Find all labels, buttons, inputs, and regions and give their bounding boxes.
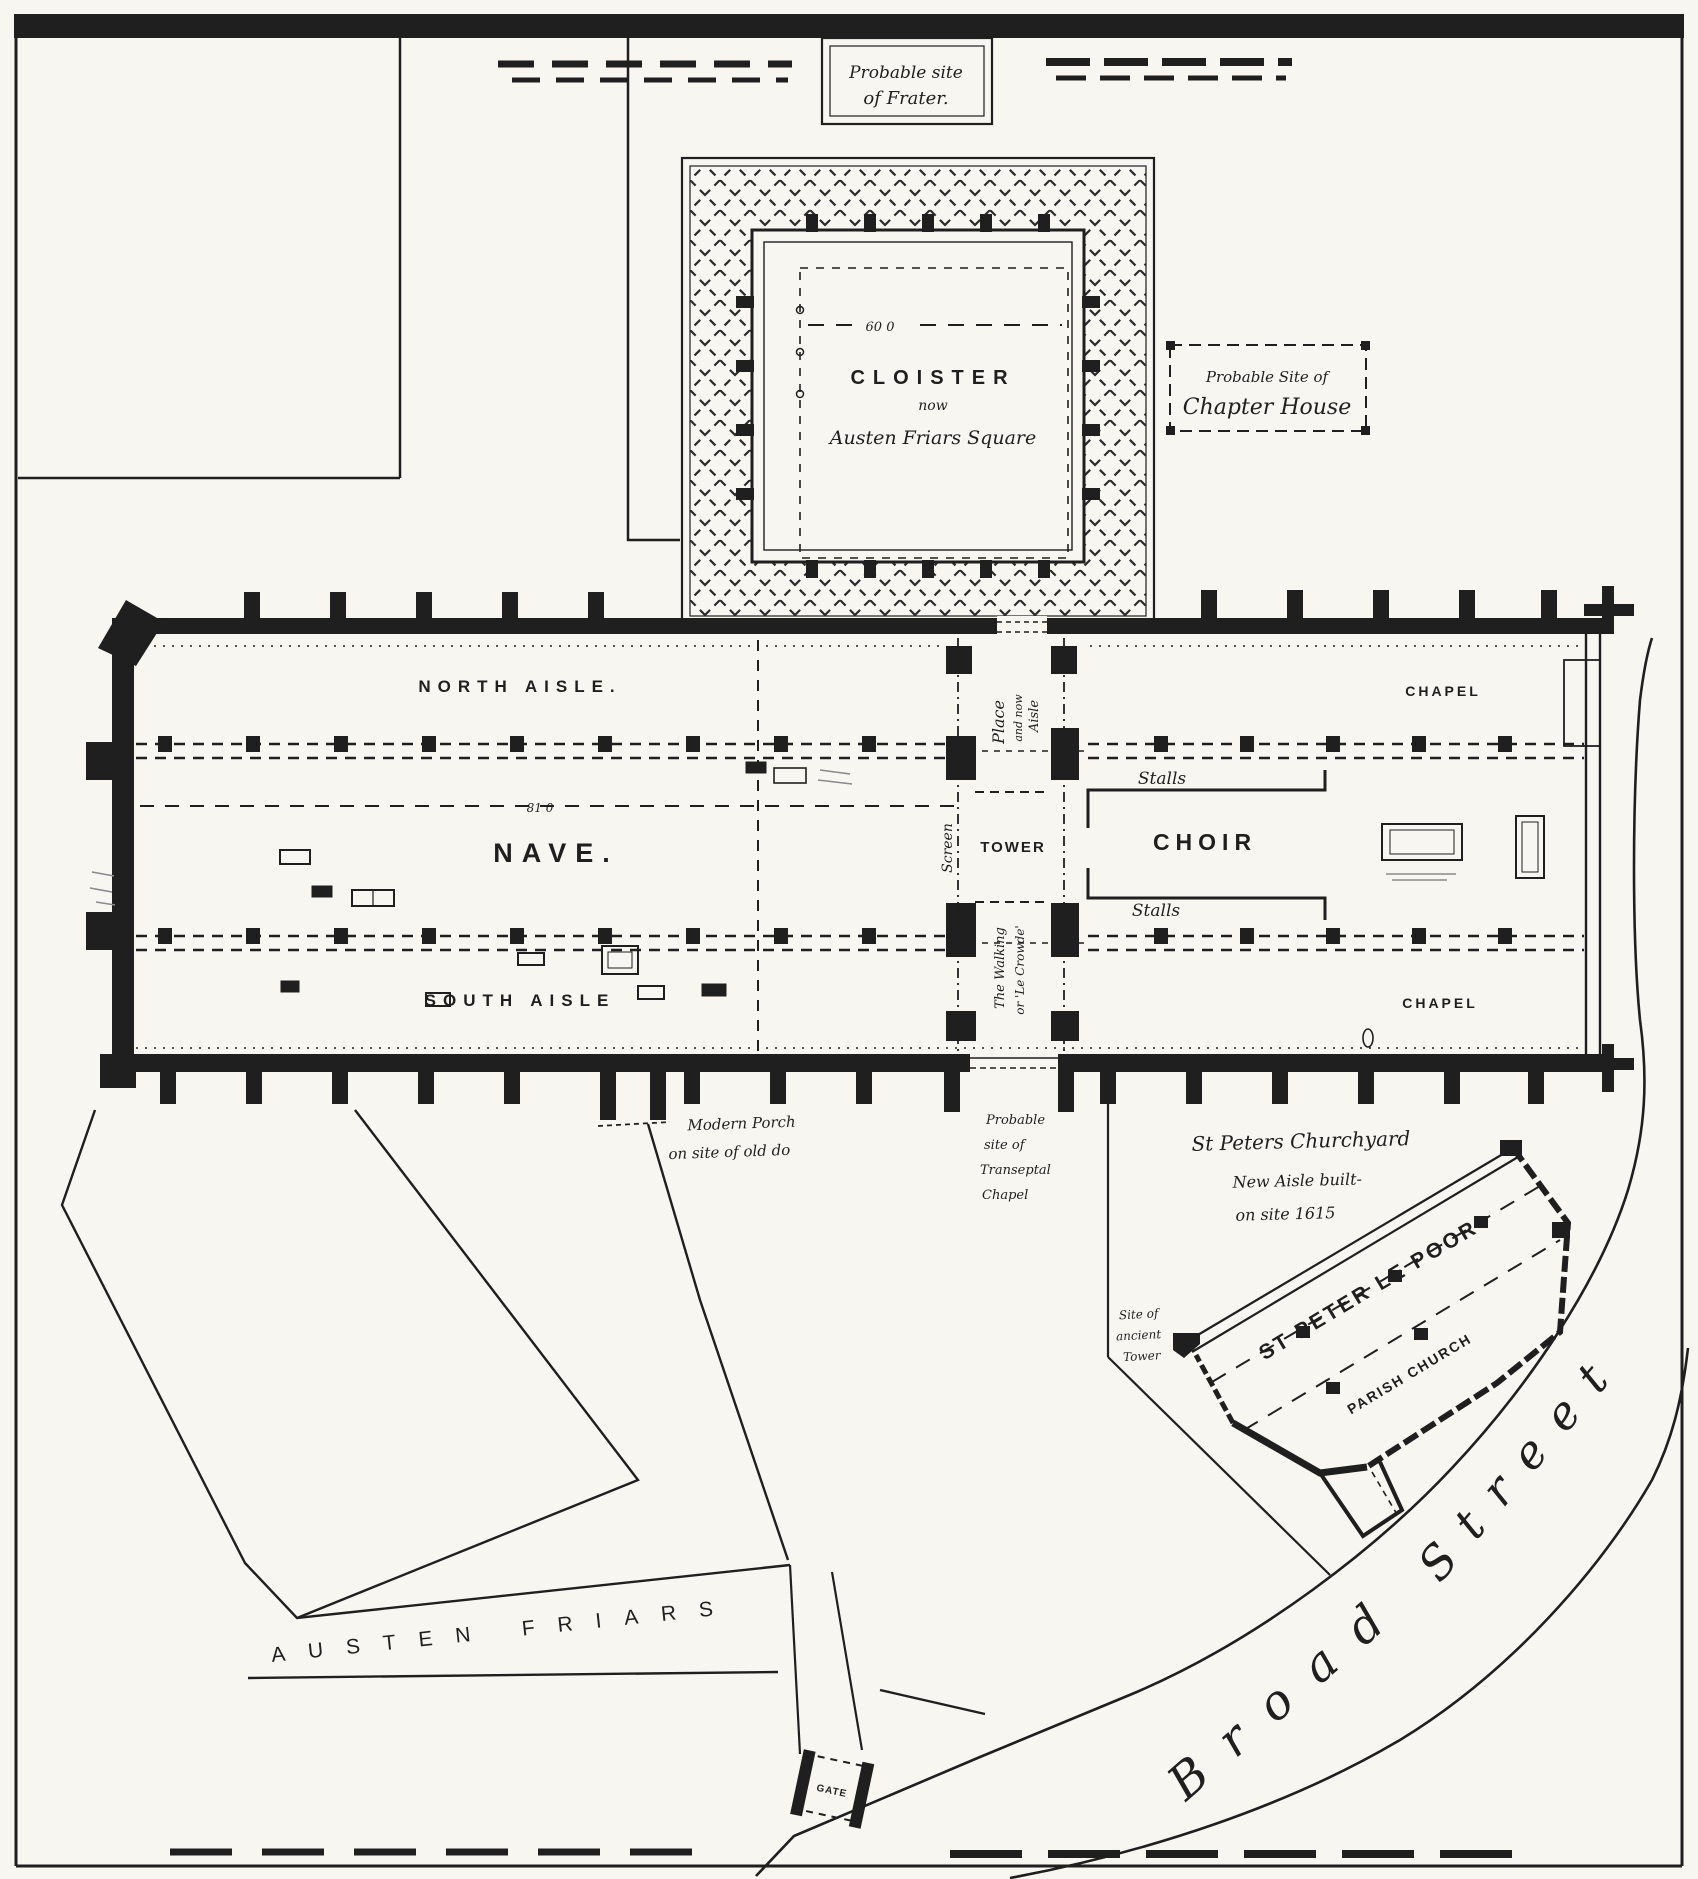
plan-of-austin-friars: Probable site of Frater. Probable Site o… [0,0,1698,1879]
new-aisle-note-line2: on site 1615 [1235,1203,1336,1225]
arcade-pillars [158,736,1512,944]
stalls-south-label: Stalls [1132,901,1180,921]
walking-place-line1: The Walking [993,927,1008,1009]
porch-note-line1: Modern Porch [686,1113,796,1135]
transept-note-line3: Transeptal [980,1163,1051,1178]
chapel-north-label: CHAPEL [1405,683,1481,699]
chapter-house-site-box: Probable Site of Chapter House [1154,341,1370,618]
porch-note: Modern Porch on site of old do [667,1113,797,1163]
church-walls [86,586,1634,1112]
churchyard-note: St Peters Churchyard [1191,1126,1410,1156]
frater-label-line2: of Frater. [863,88,948,109]
churchyard-south-fence [1108,1357,1330,1575]
northwest-corner-buttress [98,600,164,666]
chapter-house-line2: Chapter House [1183,395,1351,420]
nave-monuments [280,762,852,1006]
cloister: 60 0 CLOISTER now Austen Friars Square [682,158,1154,624]
high-altar [1516,816,1544,878]
screen-label: Screen [940,823,956,873]
st-peter-type-label: PARISH CHURCH [1344,1330,1474,1417]
transept-note-line1: Probable [985,1113,1045,1128]
stalls-north-label: Stalls [1138,769,1186,789]
church-arcades [136,640,1584,1052]
gate: GATE [790,1565,874,1829]
nave-dimension: 81 0 [527,801,554,815]
place-aisle-line1: Place [989,700,1008,745]
frater-site-box: Probable site of Frater. [822,38,992,124]
chapter-house-line1: Probable Site of [1205,368,1331,386]
frater-label-line1: Probable site [848,63,963,83]
broad-street-word1: Broad [1156,1574,1417,1811]
tower-site-line1: Site of [1119,1306,1162,1322]
precinct-plot-lines [18,38,680,540]
gate-label: GATE [815,1783,848,1800]
ancient-tower-note: Site of ancient Tower [1115,1306,1164,1364]
north-aisle-label: NORTH AISLE. [418,677,621,696]
west-end-illegible-marks [90,872,115,905]
broad-street-curves [756,638,1688,1878]
place-aisle-line2: and now [1012,694,1025,742]
cloister-title: CLOISTER [850,367,1015,389]
choir-label: CHOIR [1153,829,1257,855]
east-wall-niche [1564,660,1600,746]
transept-note-line2: site of [984,1138,1027,1153]
tower-site-line3: Tower [1123,1348,1162,1364]
transeptal-chapel-note: Probable site of Transeptal Chapel [980,1113,1051,1203]
chapel-south-label: CHAPEL [1402,995,1478,1011]
transept-note-line4: Chapel [982,1188,1028,1203]
chapel-mark [1363,1029,1373,1047]
south-porch [598,1072,670,1126]
choir-tomb-monument [1382,824,1462,880]
walking-place-line2: or 'Le Crowde' [1013,925,1027,1014]
cloister-now: now [918,398,947,414]
broad-street-word2: Street [1407,1335,1634,1591]
south-wall-buttresses [160,1072,1544,1112]
southeast-corner-buttress [1584,1044,1634,1092]
porch-note-line2: on site of old do [668,1141,790,1163]
cloister-square-label: Austen Friars Square [828,427,1036,449]
place-aisle-line3: Aisle [1027,700,1042,733]
tower-label: TOWER [980,839,1046,856]
south-aisle-label: SOUTH AISLE [425,991,616,1010]
tower-site-line2: ancient [1116,1327,1162,1343]
nave-label: NAVE. [493,838,619,868]
austen-friars-street-label: AUSTEN FRIARS [270,1595,737,1667]
new-aisle-note-line1: New Aisle built- [1231,1169,1362,1191]
st-peters-churchyard-note: St Peters Churchyard New Aisle built- on… [1191,1126,1412,1226]
cloister-dimension: 60 0 [866,320,895,335]
